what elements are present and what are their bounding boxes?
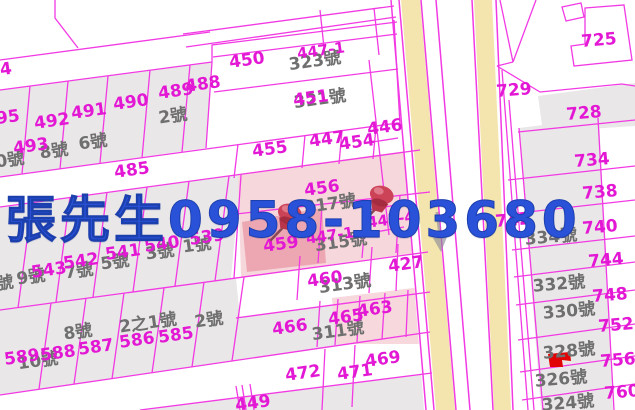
house-number-label: 324號 (541, 393, 595, 410)
parcel-number-label: 490 (112, 92, 150, 114)
parcel-number-label: 493 (12, 136, 50, 158)
parcel-number-label: 588 (39, 343, 77, 365)
parcel-number-label: 585 (157, 325, 195, 347)
house-number-label: 2號 (158, 107, 189, 128)
parcel-number-label: 760 (604, 383, 635, 403)
parcel-number-label: 491 (70, 101, 108, 123)
house-number-label: 330號 (542, 301, 596, 323)
parcel-number-label: 492 (33, 111, 71, 133)
parcel-number-label: 450 (228, 50, 266, 72)
parcel-number-label: 587 (77, 337, 115, 359)
parcel-number-label: 725 (581, 31, 618, 51)
parcel-number-label: 740 (582, 218, 619, 238)
parcel-number-label: 752 (598, 316, 635, 336)
parcel-number-label: 95 (0, 108, 21, 128)
parcel-number-label: 4 (0, 61, 13, 79)
house-number-label: 328號 (542, 341, 596, 363)
parcel-number-label: 466 (271, 317, 309, 339)
parcel-number-label: 465 (327, 307, 365, 329)
parcel-number-label: 451 (292, 88, 330, 110)
parcel-number-label: 472 (284, 363, 322, 385)
house-number-label: 332號 (532, 274, 586, 296)
parcel-number-label: 589 (3, 347, 41, 369)
house-number-label: 號 (0, 274, 15, 293)
parcel-number-label: 469 (364, 349, 402, 371)
map-viewport[interactable]: 張先生0958-103680 2號6號8號0號323號321號317號315號3… (0, 0, 635, 410)
house-number-label: 6號 (78, 133, 109, 154)
parcel-number-label: 543 (30, 260, 68, 282)
parcel-number-label: 744 (588, 251, 625, 271)
parcel-number-label: 728 (566, 104, 603, 124)
parcel-number-label: 460 (306, 269, 344, 291)
parcel-number-label: 756 (600, 351, 635, 371)
parcel-number-label: 734 (574, 151, 611, 171)
parcel-number-label: 586 (118, 330, 156, 352)
parcel-number-label: 542 (62, 251, 100, 273)
parcel-number-label: 427 (387, 254, 425, 276)
contact-overlay-text: 張先生0958-103680 (6, 180, 581, 252)
parcel-number-label: 455 (251, 139, 289, 161)
house-number-label: 2號 (194, 311, 225, 332)
parcel-number-label: 738 (582, 183, 619, 203)
parcel-number-label: 748 (592, 286, 629, 306)
house-number-label: 326號 (534, 369, 588, 391)
parcel-number-label: 488 (184, 74, 222, 96)
parcel-number-label: 729 (496, 81, 533, 101)
parcel-number-label: 485 (113, 160, 151, 182)
parcel-number-label: 454 (338, 132, 376, 154)
parcel-number-label: 449 (234, 393, 272, 410)
